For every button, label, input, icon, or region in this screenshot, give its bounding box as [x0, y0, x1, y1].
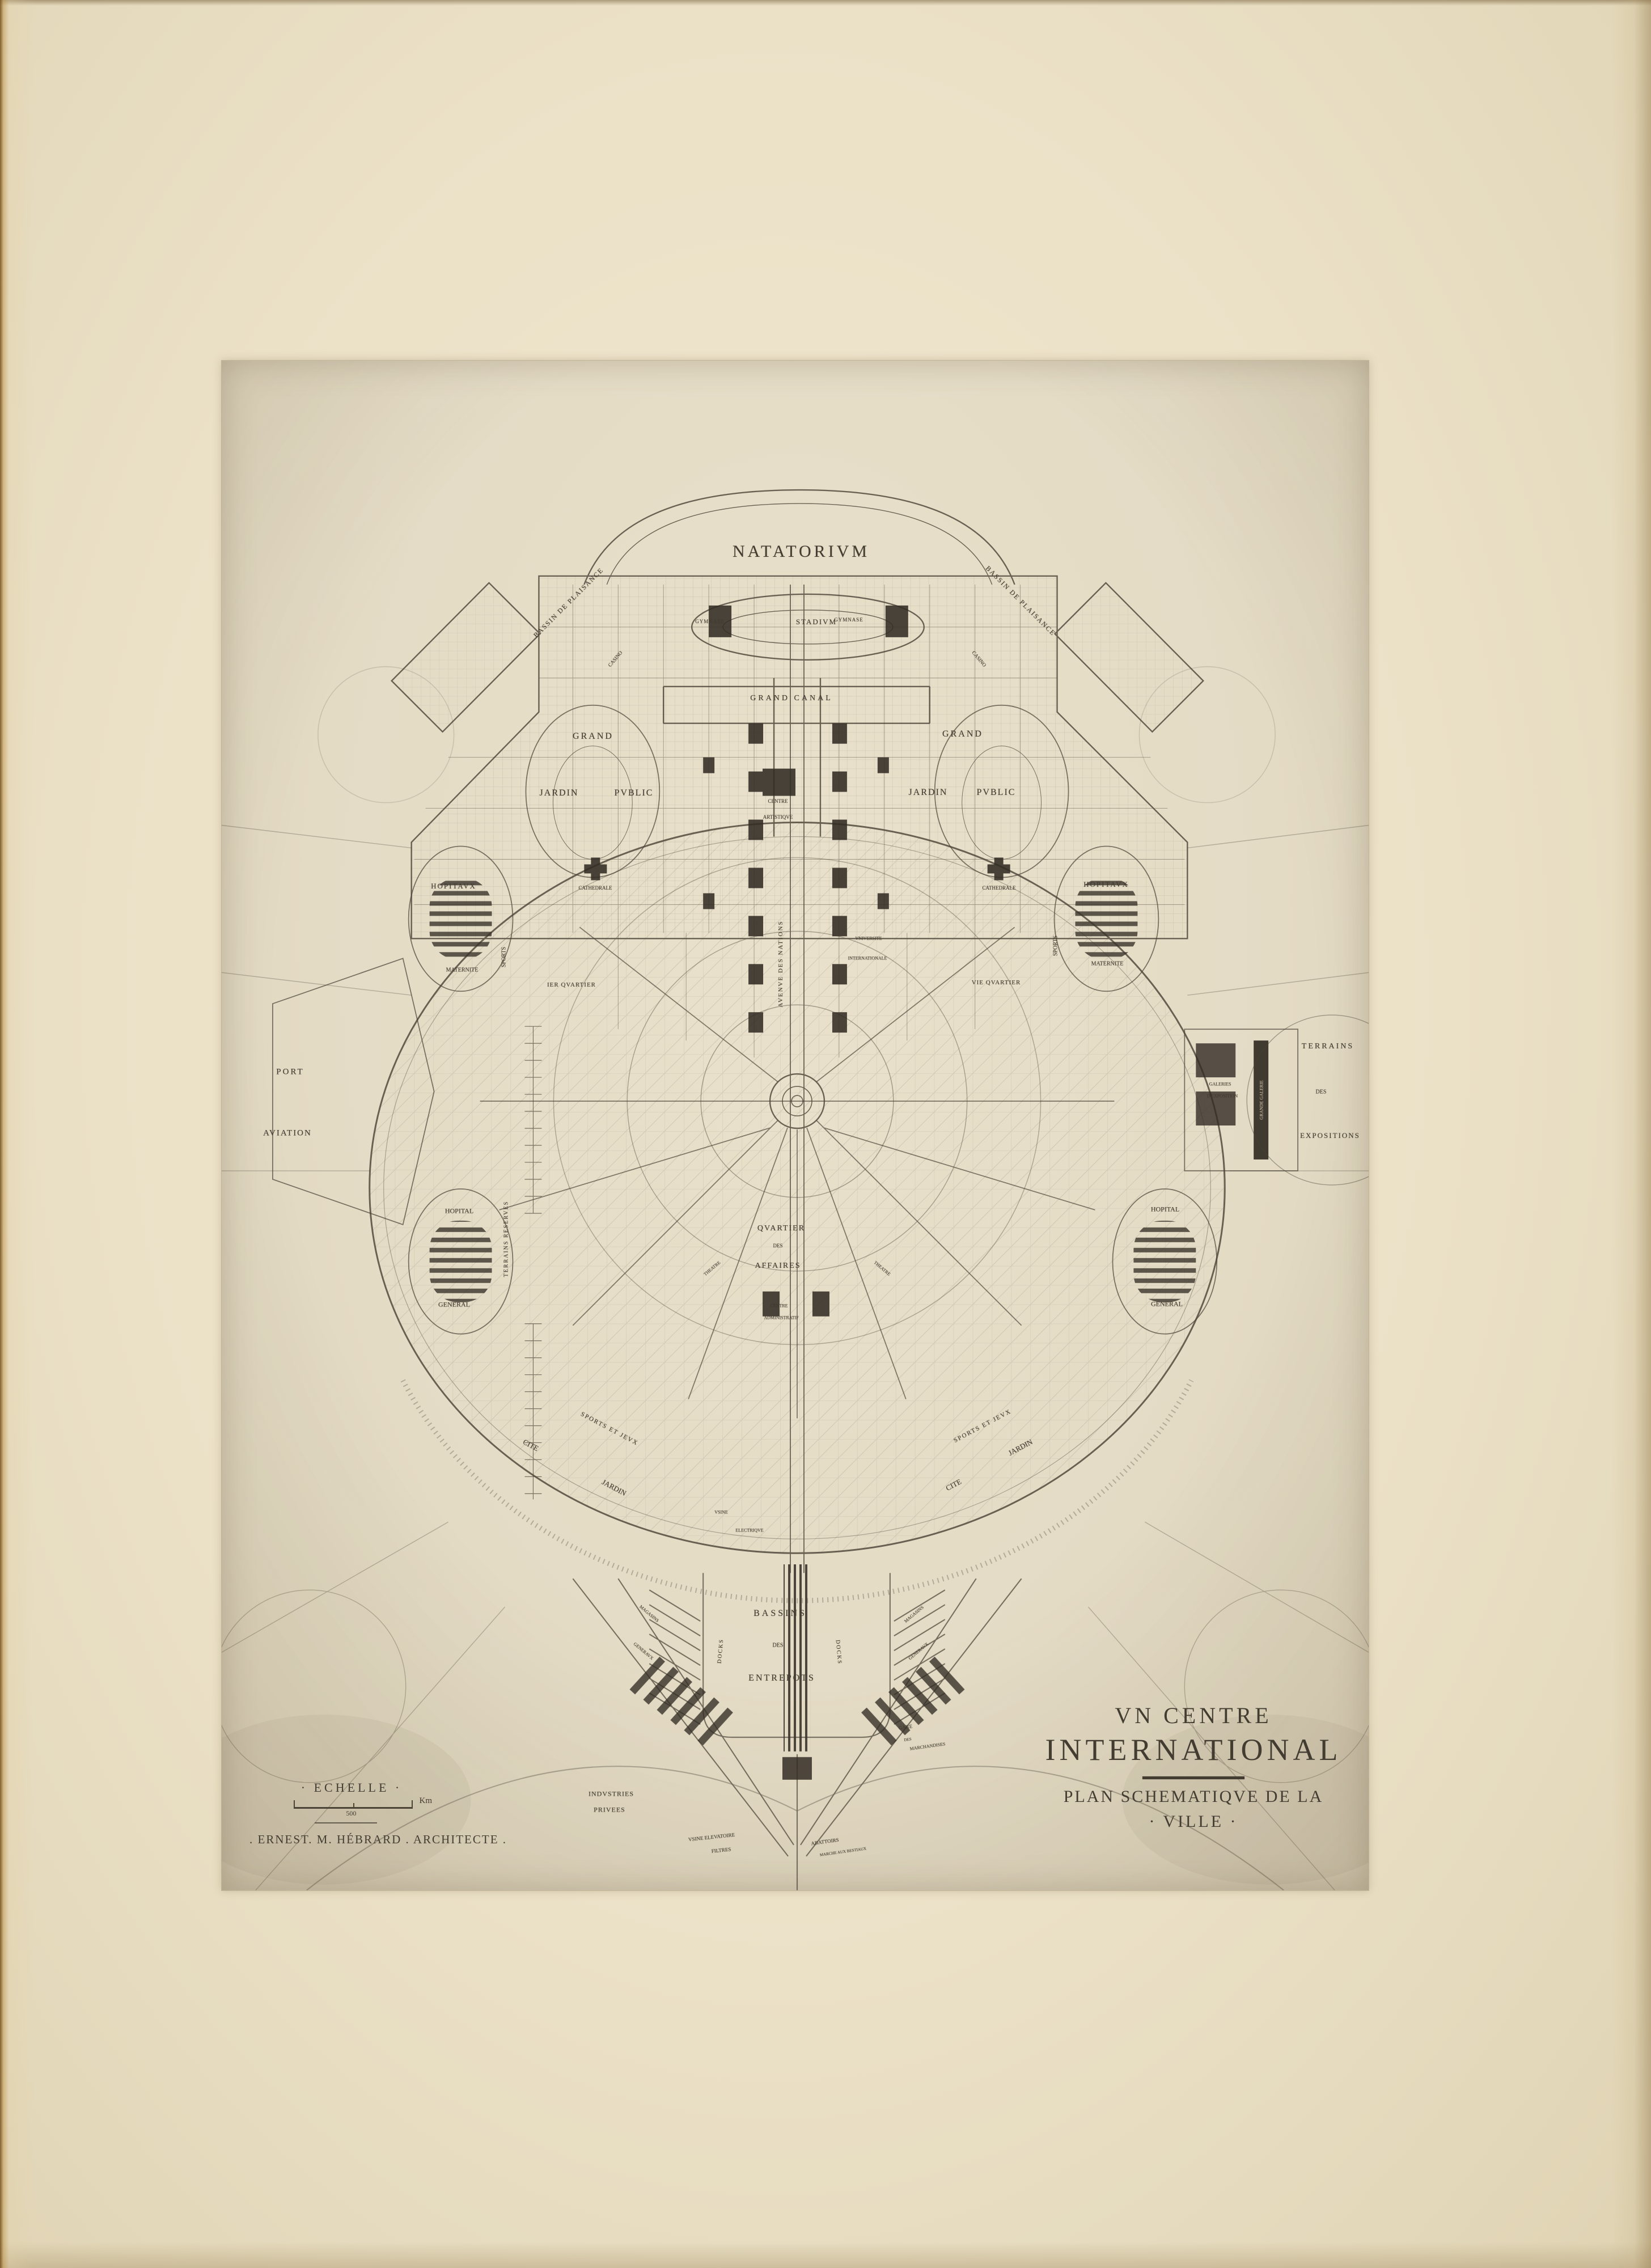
map-label-electriqve: ELECTRIQVE	[735, 1528, 763, 1533]
map-label-grande-galerie: GRANDE GALERIE	[1259, 1080, 1264, 1120]
map-label-marchandises: MARCHANDISES	[909, 1741, 946, 1751]
map-label-abattoirs: ABATTOIRS	[811, 1837, 839, 1847]
map-label-grand-canal: GRAND CANAL	[750, 694, 833, 703]
title-line1: VN CENTRE	[1021, 1702, 1366, 1729]
scale-tick-mid	[353, 1803, 354, 1808]
map-label-affaires: AFFAIRES	[755, 1262, 801, 1271]
map-label-vsine-elevatoire: VSINE ELEVATOIRE	[688, 1832, 735, 1843]
map-label-aviation: AVIATION	[263, 1129, 312, 1139]
map-label-pvblic: PVBLIC	[615, 788, 654, 798]
map-label-casino: CASINO	[607, 650, 623, 668]
map-label-general: GENERAL	[1151, 1300, 1183, 1309]
map-label-cite: CITE	[521, 1437, 540, 1453]
map-label-vie-qvartier: VIE QVARTIER	[972, 979, 1021, 986]
map-label-bassins: BASSINS	[753, 1609, 807, 1619]
map-label-des: DES	[773, 1243, 782, 1249]
map-label-ier-qvartier: IER QVARTIER	[547, 981, 596, 988]
title-line2: INTERNATIONAL	[1021, 1732, 1366, 1767]
map-label-generavx: GENERAVX	[908, 1641, 930, 1661]
scale-label: · ECHELLE ·	[266, 1780, 437, 1795]
architect-credit: . ERNEST. M. HÉBRARD . ARCHITECTE .	[249, 1833, 488, 1847]
title-rule	[1142, 1776, 1244, 1779]
map-label-theatre: THEATRE	[873, 1260, 891, 1277]
map-label-jardin: JARDIN	[540, 788, 579, 798]
map-label-cathedrale: CATHEDRALE	[983, 885, 1016, 891]
book-page: NATATORIVMSTADIVMGYMNASEGYMNASEBASSIN DE…	[0, 0, 1651, 2268]
map-label-maternite: MATERNITE	[1091, 961, 1124, 967]
map-label-pvblic: PVBLIC	[977, 788, 1016, 798]
map-label-marche-aux-bestiaux: MARCHE AUX BESTIAUX	[819, 1846, 866, 1857]
map-label-centre: CENTRE	[770, 1304, 788, 1309]
map-label-grand: GRAND	[942, 729, 983, 739]
map-label-sports-et-jevx: SPORTS ET JEVX	[952, 1408, 1013, 1444]
map-label-d-exposition: D'EXPOSITION	[1207, 1094, 1238, 1099]
map-label-centre: CENTRE	[768, 798, 788, 804]
scale-value: 500	[346, 1809, 356, 1818]
map-label-sports-et-jevx: SPORTS ET JEVX	[579, 1411, 640, 1447]
map-label-generavx: GENERAVX	[633, 1641, 655, 1661]
map-label-casino: CASINO	[971, 650, 987, 668]
map-label-vniversite: VNIVERSITE	[855, 936, 882, 941]
map-label-hopital: HOPITAL	[445, 1207, 473, 1216]
map-label-bassin-de-plaisance: BASSIN DE PLAISANCE	[532, 566, 606, 640]
map-label-stadivm: STADIVM	[796, 617, 837, 627]
map-label-maternite: MATERNITE	[446, 967, 479, 974]
map-label-magasins: MAGASINS	[638, 1604, 660, 1623]
map-label-magasins: MAGASINS	[903, 1605, 925, 1624]
map-label-gymnase: GYMNASE	[695, 619, 725, 624]
scale-tick-right	[412, 1800, 413, 1808]
map-label-natatorivm: NATATORIVM	[733, 542, 870, 561]
map-label-galeries: GALERIES	[1209, 1082, 1231, 1087]
map-label-hopitavx: HOPITAVX	[431, 882, 476, 891]
map-label-sports: SPORTS	[1053, 936, 1059, 956]
scale-unit: Km	[420, 1796, 433, 1806]
map-label-gymnase: GYMNASE	[834, 617, 863, 623]
map-label-gare: GARE	[898, 1723, 913, 1730]
map-label-des: DES	[773, 1643, 784, 1649]
map-label-des: DES	[904, 1737, 912, 1742]
map-label-indvstries: INDVSTRIES	[589, 1790, 634, 1799]
map-label-jardin: JARDIN	[600, 1478, 628, 1498]
map-label-docks: DOCKS	[717, 1639, 725, 1664]
map-label-docks: DOCKS	[835, 1640, 843, 1665]
map-label-grand: GRAND	[573, 731, 613, 742]
map-label-vsine: VSINE	[714, 1510, 728, 1515]
map-label-hopitavx: HOPITAVX	[1083, 880, 1129, 889]
scale-bar: 500 Km	[294, 1801, 413, 1809]
scale-underline	[315, 1822, 377, 1823]
map-label-entrepots: ENTREPOTS	[748, 1673, 815, 1683]
map-label-port: PORT	[276, 1068, 304, 1077]
map-label-administratif: ADMINISTRATIF	[764, 1315, 798, 1321]
map-label-expositions: EXPOSITIONS	[1300, 1131, 1360, 1140]
map-label-artistiqve: ARTISTIQVE	[763, 814, 793, 820]
map-label-jardin: JARDIN	[909, 788, 948, 798]
map-label-jardin: JARDIN	[1007, 1437, 1034, 1458]
map-label-terrains: TERRAINS	[1302, 1042, 1354, 1051]
map-label-cite: CITE	[944, 1477, 963, 1493]
map-title-block: VN CENTRE INTERNATIONAL PLAN SCHEMATIQVE…	[1021, 1702, 1366, 1831]
map-label-filtres: FILTRES	[711, 1846, 731, 1854]
map-label-sports: SPORTS	[501, 947, 507, 967]
map-label-qvartier: QVARTIER	[757, 1224, 805, 1233]
title-line3: PLAN SCHEMATIQVE DE LA	[1021, 1787, 1366, 1806]
scale-block: · ECHELLE · 500 Km . ERNEST. M. HÉBRARD …	[249, 1780, 488, 1847]
map-label-avenve-des-nations: AVENVE DES NATIONS	[777, 920, 784, 1007]
title-line4: · VILLE ·	[1021, 1812, 1366, 1831]
map-labels: NATATORIVMSTADIVMGYMNASEGYMNASEBASSIN DE…	[0, 0, 1651, 2268]
map-label-bassin-de-plaisance: BASSIN DE PLAISANCE	[984, 564, 1057, 638]
map-label-terrains-reserves: TERRAINS RESERVES	[503, 1201, 510, 1277]
map-label-des: DES	[1316, 1089, 1327, 1095]
scale-tick-left	[294, 1800, 295, 1808]
map-label-internationale: INTERNATIONALE	[848, 956, 887, 961]
map-label-theatre: THEATRE	[702, 1260, 721, 1277]
map-label-general: GENERAL	[438, 1301, 470, 1309]
map-label-privees: PRIVEES	[594, 1806, 625, 1814]
map-label-cathedrale: CATHEDRALE	[579, 885, 612, 891]
map-label-hopital: HOPITAL	[1151, 1205, 1179, 1214]
